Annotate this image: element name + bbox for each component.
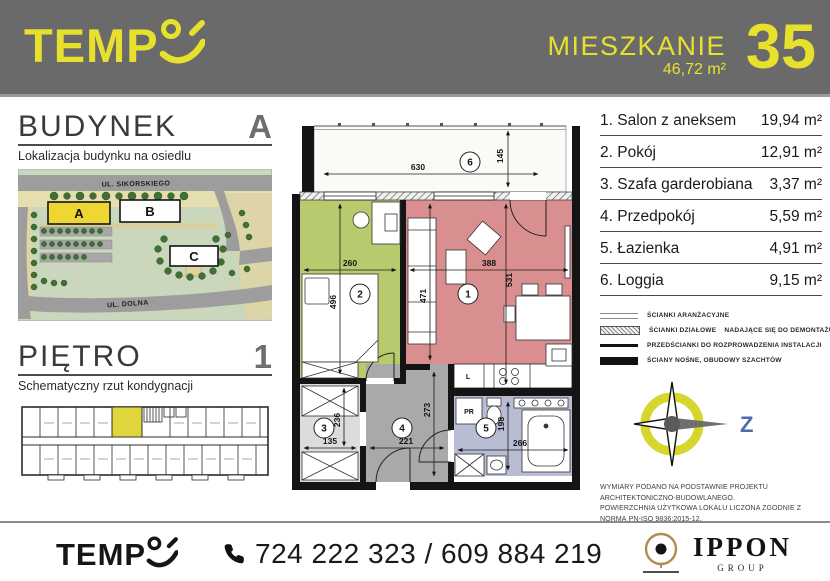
washbasin xyxy=(487,456,506,474)
legend-row: ŚCIANY NOŚNE, OBUDOWY SZACHTÓW xyxy=(600,353,822,368)
coffee-table xyxy=(446,250,466,284)
brand-text: TEMP xyxy=(24,22,159,69)
street-top-label: UL. SIKORSKIEGO xyxy=(102,180,171,188)
footer-brand-text: TEMP xyxy=(56,539,146,570)
svg-text:6: 6 xyxy=(467,158,473,169)
svg-text:3: 3 xyxy=(321,424,327,435)
fridge-label: L xyxy=(466,374,471,381)
bathtub xyxy=(522,410,570,472)
building-b-shape: B xyxy=(120,200,180,222)
header-bar: TEMP MIESZKANIE 46,72 m² 35 xyxy=(0,0,830,97)
sofa xyxy=(408,218,436,344)
svg-text:145: 145 xyxy=(495,149,505,163)
svg-text:1: 1 xyxy=(465,290,471,301)
sink xyxy=(552,349,566,361)
unit-total-area: 46,72 m² xyxy=(547,61,726,79)
bathtub-drain xyxy=(544,424,548,428)
radiator-coil xyxy=(545,400,551,406)
partner-sub: GROUP xyxy=(693,563,792,573)
svg-text:471: 471 xyxy=(418,289,428,303)
footer-brand-logo: TEMP xyxy=(56,533,178,570)
svg-text:5: 5 xyxy=(483,424,489,435)
building-a-label: A xyxy=(74,206,84,221)
pillow xyxy=(305,278,329,304)
floor-subtitle: Schematyczny rzut kondygnacji xyxy=(18,379,272,393)
disclaimer-line: WYMIARY PODANO NA PODSTAWNIE PROJEKTU AR… xyxy=(600,483,822,504)
room-area: 9,15 m² xyxy=(769,272,822,290)
dining-chair xyxy=(522,284,538,295)
partner-icon xyxy=(639,530,683,576)
building-c-label: C xyxy=(189,249,199,264)
room-area: 3,37 m² xyxy=(769,176,822,194)
floor-section-head: PIĘTRO 1 xyxy=(18,340,272,376)
unit-number: 35 xyxy=(746,16,816,79)
chair xyxy=(353,212,369,228)
phone-block[interactable]: 724 222 323 / 609 884 219 xyxy=(222,538,602,570)
balcony-door-opening xyxy=(510,192,546,200)
room-label: 2. Pokój xyxy=(600,144,656,162)
radiator-coil xyxy=(532,400,538,406)
legend-row: PRZEDŚCIANKI DO ROZPROWADZENIA INSTALACJ… xyxy=(600,338,822,353)
room-loggia-floor xyxy=(314,126,566,192)
legend-swatch-structural-wall xyxy=(600,357,638,365)
building-c-shape: C xyxy=(170,246,218,266)
partner-text: IPPON GROUP xyxy=(693,534,792,573)
svg-text:388: 388 xyxy=(482,258,496,268)
legend-row: ŚCIANKI DZIAŁOWE NADAJĄCE SIĘ DO DEMONTA… xyxy=(600,323,822,338)
building-section-head: BUDYNEK A xyxy=(18,110,272,146)
room-area: 19,94 m² xyxy=(761,112,822,130)
building-subtitle: Lokalizacja budynku na osiedlu xyxy=(18,149,272,163)
svg-text:198: 198 xyxy=(496,417,506,431)
floor-value: 1 xyxy=(254,340,272,373)
wall-legend: ŚCIANKI ARANŻACYJNE ŚCIANKI DZIAŁOWE NAD… xyxy=(600,308,822,368)
highlighted-unit xyxy=(112,407,142,437)
walls-partition xyxy=(300,192,572,200)
unit-type-label: MIESZKANIE xyxy=(547,32,726,60)
room-row: 1. Salon z aneksem 19,94 m² xyxy=(600,112,822,136)
room-row: 6. Loggia 9,15 m² xyxy=(600,272,822,296)
svg-text:531: 531 xyxy=(504,273,514,287)
svg-text:496: 496 xyxy=(328,295,338,309)
building-value: A xyxy=(248,110,272,143)
room-label: 5. Łazienka xyxy=(600,240,679,258)
room-label: 3. Szafa garderobiana xyxy=(600,176,753,194)
kitchen-counter xyxy=(454,364,572,388)
svg-text:273: 273 xyxy=(422,403,432,417)
building-b-label: B xyxy=(145,204,154,219)
phone-icon xyxy=(222,542,246,566)
room-area: 5,59 m² xyxy=(769,208,822,226)
compass-west-label: Z xyxy=(740,412,753,437)
legend-swatch-light-partition xyxy=(600,313,638,319)
right-column: 1. Salon z aneksem 19,94 m² 2. Pokój 12,… xyxy=(600,112,822,525)
phone-numbers[interactable]: 724 222 323 / 609 884 219 xyxy=(255,538,602,570)
brand-swoosh-icon xyxy=(159,14,205,66)
room-label: 6. Loggia xyxy=(600,272,664,290)
legend-swatch-installation-wall xyxy=(600,344,638,347)
partner-logo: IPPON GROUP xyxy=(639,530,792,576)
monitor xyxy=(385,214,397,231)
disclaimer: WYMIARY PODANO NA PODSTAWNIE PROJEKTU AR… xyxy=(600,483,822,525)
room-row: 4. Przedpokój 5,59 m² xyxy=(600,208,822,232)
radiator-coil xyxy=(558,400,564,406)
room-label: 4. Przedpokój xyxy=(600,208,695,226)
legend-swatch-removable-partition xyxy=(600,326,640,335)
footer-brand-swoosh-icon xyxy=(146,533,178,569)
svg-text:2: 2 xyxy=(357,290,363,301)
partner-name: IPPON xyxy=(693,534,792,561)
floor-plan: L PR xyxy=(288,110,588,517)
compass-hub xyxy=(664,416,680,432)
room-label: 1. Salon z aneksem xyxy=(600,112,736,130)
room-row: 2. Pokój 12,91 m² xyxy=(600,144,822,168)
svg-text:260: 260 xyxy=(343,258,357,268)
dining-table xyxy=(516,296,570,340)
compass-rose: Z xyxy=(610,376,822,481)
floor-title: PIĘTRO xyxy=(18,340,142,373)
radiator-coil xyxy=(519,400,525,406)
washer-label: PR xyxy=(464,409,474,416)
brand-logo: TEMP xyxy=(24,14,205,69)
building-section: BUDYNEK A Lokalizacja budynku na osiedlu xyxy=(18,110,272,326)
svg-text:630: 630 xyxy=(411,162,425,172)
legend-row: ŚCIANKI ARANŻACYJNE xyxy=(600,308,822,323)
floor-section: PIĘTRO 1 Schematyczny rzut kondygnacji xyxy=(18,340,272,488)
room-area: 4,91 m² xyxy=(769,240,822,258)
svg-text:266: 266 xyxy=(513,438,527,448)
building-title: BUDYNEK xyxy=(18,110,177,143)
left-column: BUDYNEK A Lokalizacja budynku na osiedlu xyxy=(18,110,272,488)
building-a-shape: A xyxy=(48,202,110,224)
room-row: 3. Szafa garderobiana 3,37 m² xyxy=(600,176,822,200)
toilet-tank xyxy=(487,398,501,406)
room-area: 12,91 m² xyxy=(761,144,822,162)
svg-text:4: 4 xyxy=(399,424,405,435)
floor-schematic xyxy=(18,399,272,488)
room-list: 1. Salon z aneksem 19,94 m² 2. Pokój 12,… xyxy=(600,112,822,296)
flat-card-page: TEMP MIESZKANIE 46,72 m² 35 BUDYNEK A Lo… xyxy=(0,0,830,581)
room-row: 5. Łazienka 4,91 m² xyxy=(600,240,822,264)
dining-chair xyxy=(546,284,562,295)
site-map: UL. SIKORSKIEGO UL. DOLNA xyxy=(18,169,272,326)
footer-bar: TEMP 724 222 323 / 609 884 219 IPPON xyxy=(0,521,830,581)
unit-info: MIESZKANIE 46,72 m² xyxy=(547,32,726,79)
